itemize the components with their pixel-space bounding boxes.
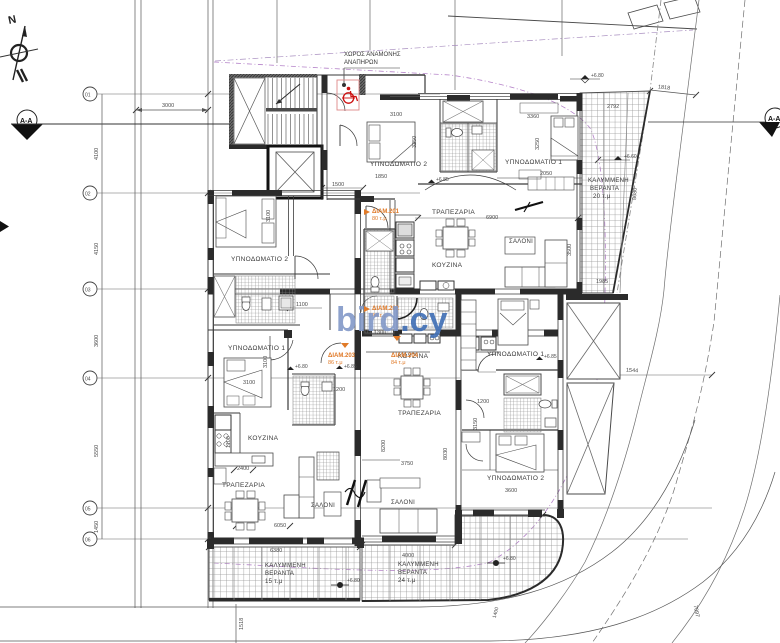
svg-text:+6.85: +6.85	[436, 177, 449, 183]
svg-text:ΧΩΡΟΣ ΑΝΑΜΟΝΗΣ: ΧΩΡΟΣ ΑΝΑΜΟΝΗΣ	[344, 52, 401, 58]
svg-text:ΑΝΑΠΗΡΩΝ: ΑΝΑΠΗΡΩΝ	[344, 60, 378, 66]
svg-text:+6.85: +6.85	[344, 364, 357, 370]
svg-text:3250: 3250	[535, 138, 541, 150]
svg-text:3500: 3500	[567, 244, 573, 256]
svg-text:ΥΠΝΟΔΩΜΑΤΙΟ 2: ΥΠΝΟΔΩΜΑΤΙΟ 2	[231, 256, 288, 263]
svg-text:1518: 1518	[239, 618, 245, 630]
svg-text:1100: 1100	[296, 302, 308, 308]
svg-text:3100: 3100	[266, 210, 272, 222]
svg-text:1818: 1818	[658, 84, 671, 91]
svg-text:05: 05	[85, 507, 91, 513]
svg-text:20 τ.μ: 20 τ.μ	[593, 194, 611, 200]
svg-text:2400: 2400	[237, 466, 249, 472]
svg-text:ΔΙΑΜ.203: ΔΙΑΜ.203	[328, 353, 356, 359]
svg-text:1200: 1200	[477, 399, 489, 405]
svg-text:3100: 3100	[390, 112, 402, 118]
svg-text:8200: 8200	[381, 440, 387, 452]
svg-text:ΤΡΑΠΕΖΑΡΙΑ: ΤΡΑΠΕΖΑΡΙΑ	[432, 209, 475, 216]
svg-text:+6.80: +6.80	[347, 578, 360, 584]
svg-text:2792: 2792	[607, 104, 619, 110]
svg-text:ΣΑΛΟΝΙ: ΣΑΛΟΝΙ	[311, 503, 335, 509]
svg-text:1100: 1100	[226, 436, 232, 448]
svg-text:ΣΑΛΟΝΙ: ΣΑΛΟΝΙ	[509, 239, 533, 245]
svg-text:+6.60: +6.60	[624, 154, 637, 160]
svg-text:ΚΑΛΥΜΜΕΝΗ: ΚΑΛΥΜΜΕΝΗ	[265, 563, 306, 569]
svg-text:ΥΠΝΟΔΩΜΑΤΙΟ 2: ΥΠΝΟΔΩΜΑΤΙΟ 2	[370, 161, 427, 168]
svg-text:ΥΠΝΟΔΩΜΑΤΙΟ 2: ΥΠΝΟΔΩΜΑΤΙΟ 2	[487, 475, 544, 482]
svg-text:04: 04	[85, 377, 91, 383]
svg-text:03: 03	[85, 288, 91, 294]
svg-text:3100: 3100	[243, 380, 255, 386]
svg-text:+6.85: +6.85	[544, 354, 557, 360]
svg-text:6050: 6050	[274, 523, 286, 529]
svg-text:1850: 1850	[375, 174, 387, 180]
svg-text:6900: 6900	[486, 215, 498, 221]
svg-text:3100: 3100	[263, 356, 269, 368]
svg-text:3600: 3600	[94, 335, 100, 347]
svg-text:+6.80: +6.80	[295, 364, 308, 370]
svg-text:4100: 4100	[94, 148, 100, 160]
svg-text:3150: 3150	[473, 418, 479, 430]
svg-text:ΚΑΛΥΜΜΕΝΗ: ΚΑΛΥΜΜΕΝΗ	[398, 562, 439, 568]
svg-text:24 τ.μ: 24 τ.μ	[398, 578, 416, 584]
svg-text:2050: 2050	[540, 171, 552, 177]
svg-text:3000: 3000	[162, 103, 174, 109]
svg-text:ΒΕΡΑΝΤΑ: ΒΕΡΑΝΤΑ	[265, 571, 294, 577]
svg-text:ΔΙΑΜ.204: ΔΙΑΜ.204	[391, 353, 419, 359]
svg-text:ΥΠΝΟΔΩΜΑΤΙΟ 1: ΥΠΝΟΔΩΜΑΤΙΟ 1	[505, 159, 562, 166]
svg-text:3360: 3360	[527, 114, 539, 120]
svg-text:6380: 6380	[270, 548, 282, 554]
svg-text:4000: 4000	[402, 553, 414, 559]
svg-text:84 τ.μ: 84 τ.μ	[391, 360, 406, 366]
svg-text:06: 06	[85, 538, 91, 544]
svg-text:bird.cy: bird.cy	[336, 301, 448, 339]
svg-text:A-A: A-A	[768, 116, 780, 123]
svg-text:86 τ.μ: 86 τ.μ	[328, 360, 343, 366]
svg-text:ΥΠΝΟΔΩΜΑΤΙΟ 1: ΥΠΝΟΔΩΜΑΤΙΟ 1	[487, 351, 544, 358]
svg-text:80 τ.μ: 80 τ.μ	[372, 216, 387, 222]
svg-text:ΣΑΛΟΝΙ: ΣΑΛΟΝΙ	[391, 500, 415, 506]
svg-text:15 τ.μ: 15 τ.μ	[265, 579, 283, 585]
svg-text:ΚΟΥΖΙΝΑ: ΚΟΥΖΙΝΑ	[248, 435, 279, 442]
svg-text:1985: 1985	[596, 279, 608, 285]
svg-text:+6.80: +6.80	[503, 556, 516, 562]
svg-text:ΚΑΛΥΜΜΕΝΗ: ΚΑΛΥΜΜΕΝΗ	[588, 178, 629, 184]
svg-text:ΒΕΡΑΝΤΑ: ΒΕΡΑΝΤΑ	[590, 186, 619, 192]
svg-text:3250: 3250	[412, 136, 418, 148]
svg-text:ΤΡΑΠΕΖΑΡΙΑ: ΤΡΑΠΕΖΑΡΙΑ	[398, 410, 441, 417]
svg-text:01: 01	[85, 93, 91, 99]
svg-text:ΒΕΡΑΝΤΑ: ΒΕΡΑΝΤΑ	[398, 570, 427, 576]
svg-text:1200: 1200	[333, 387, 345, 393]
svg-text:8030: 8030	[443, 448, 449, 460]
svg-text:1450: 1450	[94, 521, 100, 533]
svg-text:+6.80: +6.80	[591, 73, 604, 79]
svg-text:02: 02	[85, 192, 91, 198]
svg-text:ΤΡΑΠΕΖΑΡΙΑ: ΤΡΑΠΕΖΑΡΙΑ	[222, 482, 265, 489]
svg-text:3750: 3750	[401, 461, 413, 467]
svg-text:8680: 8680	[632, 188, 639, 201]
svg-text:ΔΙΑΜ.201: ΔΙΑΜ.201	[372, 209, 400, 215]
svg-text:ΚΟΥΖΙΝΑ: ΚΟΥΖΙΝΑ	[432, 262, 463, 269]
svg-text:1500: 1500	[332, 182, 344, 188]
svg-text:5550: 5550	[94, 445, 100, 457]
svg-text:ΥΠΝΟΔΩΜΑΤΙΟ 1: ΥΠΝΟΔΩΜΑΤΙΟ 1	[228, 345, 285, 352]
svg-text:3600: 3600	[505, 488, 517, 494]
svg-text:1544: 1544	[626, 368, 639, 375]
svg-text:4150: 4150	[94, 243, 100, 255]
